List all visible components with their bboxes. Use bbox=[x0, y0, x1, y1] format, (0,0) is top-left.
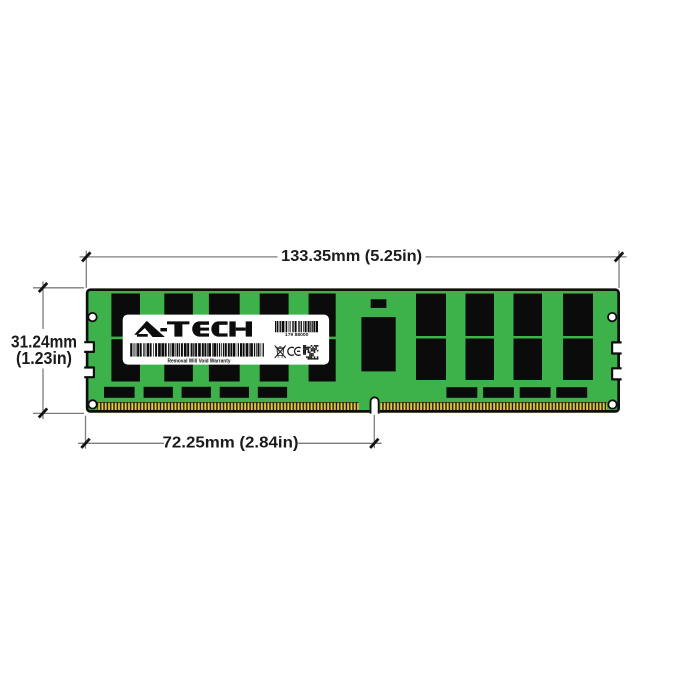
svg-text:(1.23in): (1.23in) bbox=[16, 348, 72, 368]
svg-text:Removal Will Void Warranty: Removal Will Void Warranty bbox=[168, 358, 231, 364]
svg-text:72.25mm (2.84in): 72.25mm (2.84in) bbox=[163, 435, 299, 452]
svg-text:179 88000: 179 88000 bbox=[285, 332, 309, 337]
svg-text:133.35mm (5.25in): 133.35mm (5.25in) bbox=[281, 248, 422, 265]
